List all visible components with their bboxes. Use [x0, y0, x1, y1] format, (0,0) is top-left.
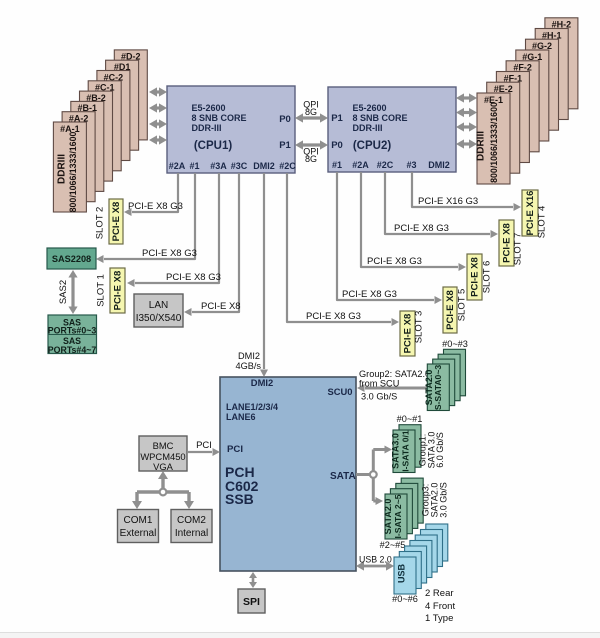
svg-text:SLOT 3: SLOT 3	[414, 311, 425, 344]
svg-text:800/1066/1333/1600: 800/1066/1333/1600	[68, 132, 78, 213]
svg-text:#0~#6: #0~#6	[392, 594, 418, 604]
svg-text:SLOT 6: SLOT 6	[482, 261, 493, 294]
svg-text:PCI-E X8 G3: PCI-E X8 G3	[394, 223, 449, 234]
svg-text:USB 2.0: USB 2.0	[359, 555, 392, 565]
svg-text:#2C: #2C	[377, 160, 394, 170]
svg-text:#2~#5: #2~#5	[380, 540, 406, 550]
svg-text:4GB/s: 4GB/s	[235, 361, 261, 371]
svg-text:P0: P0	[279, 114, 291, 125]
svg-text:SCU0: SCU0	[327, 386, 352, 397]
svg-text:PCI: PCI	[196, 440, 212, 451]
svg-text:E5-2600: E5-2600	[353, 103, 387, 113]
svg-text:VGA: VGA	[153, 461, 174, 472]
svg-text:DDRIII: DDRIII	[57, 154, 68, 184]
svg-text:PCI-E X8: PCI-E X8	[470, 257, 481, 297]
svg-text:SSB: SSB	[225, 491, 254, 507]
svg-text:PCI-E X8 G3: PCI-E X8 G3	[342, 289, 397, 300]
svg-text:BMC: BMC	[153, 440, 174, 451]
svg-text:P0: P0	[331, 140, 343, 151]
svg-text:#3A: #3A	[210, 161, 227, 171]
svg-text:from SCU: from SCU	[359, 379, 399, 389]
svg-text:SAS2: SAS2	[58, 280, 69, 304]
svg-text:SPI: SPI	[243, 596, 260, 608]
svg-text:PORTs#4~7: PORTs#4~7	[48, 345, 97, 355]
svg-text:PCI-E X16: PCI-E X16	[525, 191, 536, 236]
svg-text:SATA3.0: SATA3.0	[391, 433, 401, 469]
svg-text:#1: #1	[189, 161, 199, 171]
svg-text:P1: P1	[331, 113, 343, 124]
svg-text:SLOT 4: SLOT 4	[537, 206, 548, 239]
svg-text:#2A: #2A	[169, 161, 186, 171]
svg-text:SLOT 7: SLOT 7	[513, 233, 524, 266]
svg-text:I-SATA 2~5: I-SATA 2~5	[393, 494, 403, 538]
svg-text:#1: #1	[332, 160, 342, 170]
svg-text:E5-2600: E5-2600	[192, 103, 226, 113]
svg-text:PCI-E X8 G3: PCI-E X8 G3	[128, 201, 183, 212]
svg-text:SLOT 5: SLOT 5	[457, 289, 468, 322]
svg-text:DMI2: DMI2	[251, 377, 273, 388]
svg-text:800/1066/1333/1600: 800/1066/1333/1600	[489, 102, 499, 183]
svg-text:Internal: Internal	[175, 528, 208, 539]
svg-text:LANE1/2/3/4: LANE1/2/3/4	[226, 402, 278, 412]
svg-text:I-SATA 0/1: I-SATA 0/1	[401, 430, 411, 472]
svg-text:PCI-E X8: PCI-E X8	[201, 301, 241, 312]
svg-text:LAN: LAN	[149, 300, 168, 311]
svg-text:SAS2208: SAS2208	[52, 254, 91, 264]
svg-text:PCI-E X8: PCI-E X8	[445, 290, 456, 330]
svg-text:8G: 8G	[305, 107, 317, 117]
svg-text:PCI-E X8 G3: PCI-E X8 G3	[367, 256, 422, 267]
svg-text:8G: 8G	[305, 154, 317, 164]
svg-text:PCI-E X8: PCI-E X8	[113, 271, 124, 311]
svg-text:I350/X540: I350/X540	[136, 313, 182, 324]
svg-text:SATA: SATA	[330, 471, 356, 482]
svg-text:3.0 Gb/S: 3.0 Gb/S	[439, 482, 449, 518]
svg-text:PORTs#0~3: PORTs#0~3	[48, 326, 97, 336]
svg-text:#2A: #2A	[352, 160, 369, 170]
svg-text:PCI-E X8: PCI-E X8	[502, 223, 513, 263]
svg-text:1 Type: 1 Type	[425, 613, 453, 624]
svg-text:PCI-E X8 G3: PCI-E X8 G3	[142, 248, 197, 259]
svg-text:#3: #3	[406, 160, 416, 170]
svg-text:PCI-E X8 G3: PCI-E X8 G3	[306, 311, 361, 322]
svg-text:DMI2: DMI2	[253, 161, 275, 171]
svg-text:#0~#3: #0~#3	[442, 339, 468, 349]
svg-text:DDRIII: DDRIII	[476, 131, 487, 161]
svg-text:SATA2.0: SATA2.0	[383, 499, 393, 535]
svg-text:3.0 Gb/S: 3.0 Gb/S	[361, 392, 397, 402]
svg-text:8 SNB CORE: 8 SNB CORE	[353, 113, 408, 123]
svg-text:DMI2: DMI2	[428, 160, 450, 170]
svg-text:S-SATA0~3: S-SATA0~3	[433, 365, 443, 411]
svg-text:4 Front: 4 Front	[425, 601, 455, 612]
svg-text:PCI: PCI	[227, 444, 243, 455]
svg-text:(CPU2): (CPU2)	[353, 140, 392, 152]
svg-text:USB: USB	[397, 564, 407, 584]
svg-text:#0~#1: #0~#1	[397, 414, 423, 424]
svg-text:COM2: COM2	[177, 515, 206, 526]
svg-text:PCI-E X8: PCI-E X8	[111, 202, 122, 242]
svg-text:P1: P1	[279, 140, 291, 151]
svg-text:8 SNB CORE: 8 SNB CORE	[192, 113, 247, 123]
svg-text:DMI2: DMI2	[238, 351, 260, 361]
svg-text:#2C: #2C	[279, 161, 296, 171]
svg-text:#3C: #3C	[231, 161, 248, 171]
svg-text:SLOT 1: SLOT 1	[96, 274, 107, 307]
svg-text:(CPU1): (CPU1)	[194, 140, 233, 152]
svg-text:External: External	[120, 528, 157, 539]
svg-text:Group2: SATA2.0: Group2: SATA2.0	[359, 369, 430, 379]
svg-text:DDR-III: DDR-III	[192, 123, 222, 133]
svg-text:6.0 Gb/S: 6.0 Gb/S	[435, 432, 445, 468]
svg-text:PCI-E X16 G3: PCI-E X16 G3	[418, 196, 478, 207]
svg-text:PCI-E X8 G3: PCI-E X8 G3	[166, 272, 221, 283]
svg-text:DDR-III: DDR-III	[353, 123, 383, 133]
svg-text:COM1: COM1	[124, 515, 153, 526]
svg-text:2 Rear: 2 Rear	[425, 588, 454, 599]
svg-text:LANE6: LANE6	[226, 412, 256, 422]
svg-text:SLOT 2: SLOT 2	[95, 207, 106, 240]
svg-text:PCI-E X8: PCI-E X8	[403, 314, 414, 354]
